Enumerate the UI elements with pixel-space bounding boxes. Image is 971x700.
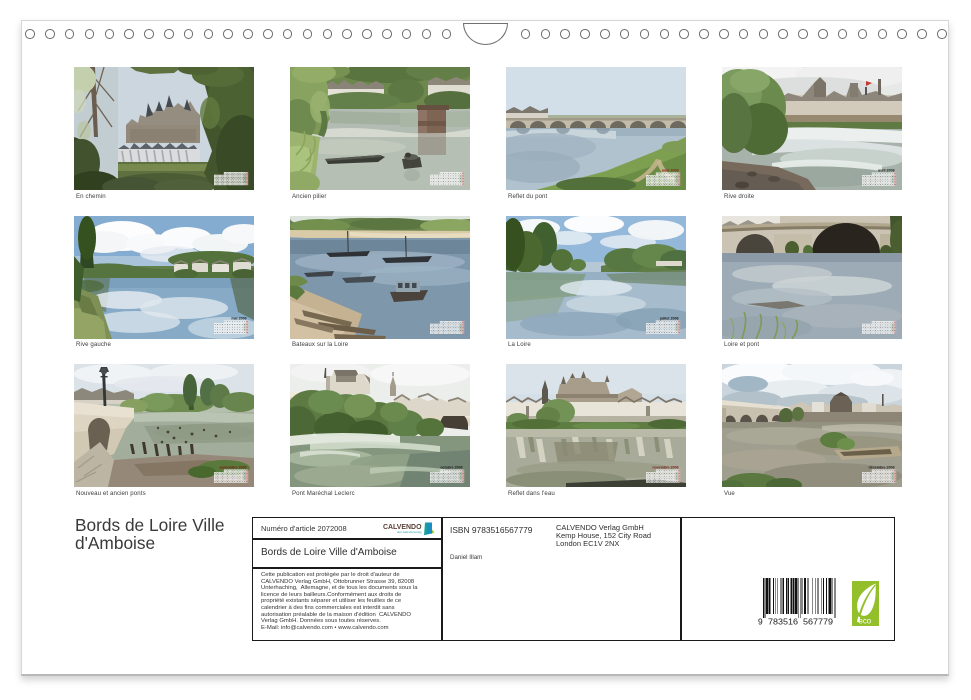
svg-text:dein kalenderverlag: dein kalenderverlag	[397, 530, 422, 534]
svg-text:juillet 2008: juillet 2008	[659, 317, 678, 321]
svg-text:eco: eco	[859, 617, 872, 626]
svg-text:567779: 567779	[803, 617, 833, 627]
svg-text:CALVENDO: CALVENDO	[383, 522, 422, 531]
svg-text:mai 2008: mai 2008	[231, 317, 246, 321]
svg-text:novembre 2008: novembre 2008	[652, 465, 678, 469]
svg-text:octobre 2008: octobre 2008	[440, 465, 462, 469]
svg-text:décembre 2008: décembre 2008	[869, 465, 895, 469]
svg-text:783516: 783516	[768, 617, 798, 627]
svg-text:août 2008: août 2008	[662, 168, 679, 172]
svg-text:septembre 2008: septembre 2008	[219, 465, 246, 469]
svg-text:9: 9	[758, 617, 763, 627]
svg-text:avril 2008: avril 2008	[878, 168, 894, 172]
